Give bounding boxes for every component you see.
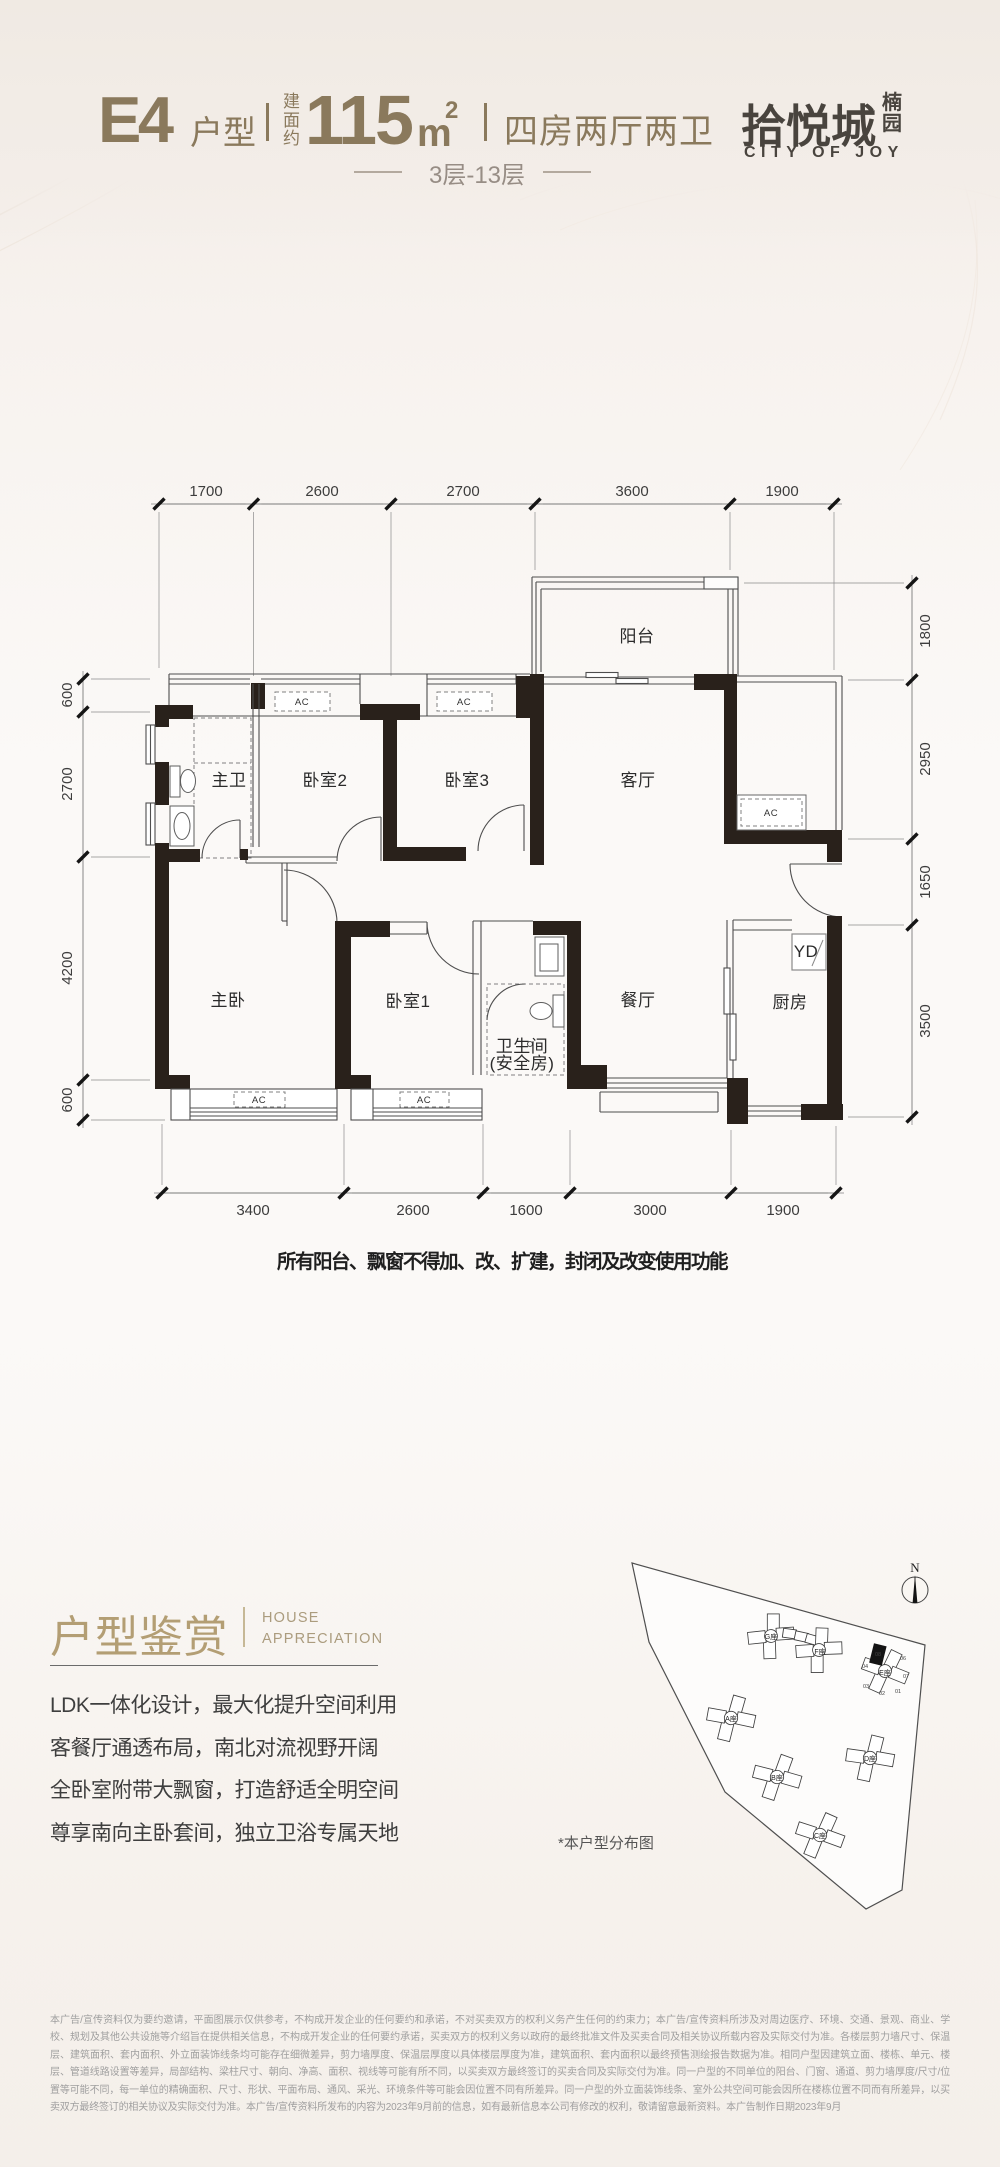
svg-text:卧室3: 卧室3: [445, 771, 490, 790]
svg-text:1900: 1900: [765, 483, 798, 500]
svg-text:AC: AC: [764, 808, 778, 819]
svg-text:2600: 2600: [305, 483, 338, 500]
svg-text:E座: E座: [879, 1668, 891, 1677]
svg-text:(安全房): (安全房): [490, 1054, 555, 1073]
svg-text:1700: 1700: [189, 483, 222, 500]
svg-text:3500: 3500: [917, 1004, 934, 1037]
svg-text:08: 08: [875, 1652, 881, 1658]
svg-text:1650: 1650: [917, 865, 934, 898]
svg-text:06: 06: [900, 1656, 906, 1662]
svg-text:2700: 2700: [446, 483, 479, 500]
svg-text:YD: YD: [794, 942, 819, 961]
svg-text:AC: AC: [295, 697, 309, 708]
svg-text:AC: AC: [252, 1095, 266, 1106]
svg-text:600: 600: [59, 682, 76, 707]
svg-text:卧室2: 卧室2: [303, 771, 348, 790]
svg-text:4200: 4200: [59, 951, 76, 984]
svg-text:1800: 1800: [917, 614, 934, 647]
svg-text:1900: 1900: [766, 1202, 799, 1219]
svg-text:阳台: 阳台: [620, 627, 655, 646]
svg-text:D座: D座: [864, 1754, 876, 1763]
svg-text:N: N: [910, 1560, 920, 1575]
svg-text:3600: 3600: [615, 483, 648, 500]
svg-text:厨房: 厨房: [773, 993, 808, 1012]
svg-text:卧室1: 卧室1: [386, 992, 431, 1011]
svg-text:600: 600: [59, 1087, 76, 1112]
svg-text:B座: B座: [771, 1773, 783, 1782]
svg-text:03: 03: [863, 1684, 869, 1690]
svg-text:04: 04: [862, 1664, 868, 1670]
svg-text:3000: 3000: [633, 1202, 666, 1219]
svg-text:餐厅: 餐厅: [621, 991, 656, 1010]
svg-text:AC: AC: [417, 1095, 431, 1106]
svg-text:A座: A座: [725, 1714, 737, 1723]
svg-text:G座: G座: [765, 1632, 777, 1641]
svg-text:02: 02: [879, 1691, 885, 1697]
svg-text:2600: 2600: [396, 1202, 429, 1219]
svg-text:07: 07: [903, 1674, 909, 1680]
svg-text:C座: C座: [814, 1831, 826, 1840]
svg-text:AC: AC: [457, 697, 471, 708]
svg-text:3400: 3400: [236, 1202, 269, 1219]
svg-text:F座: F座: [814, 1647, 825, 1656]
svg-text:2700: 2700: [59, 767, 76, 800]
svg-text:1600: 1600: [509, 1202, 542, 1219]
svg-text:01: 01: [895, 1689, 901, 1695]
svg-text:主卧: 主卧: [211, 991, 246, 1010]
svg-text:客厅: 客厅: [621, 771, 656, 790]
svg-text:2950: 2950: [917, 742, 934, 775]
svg-text:主卫: 主卫: [212, 771, 247, 790]
